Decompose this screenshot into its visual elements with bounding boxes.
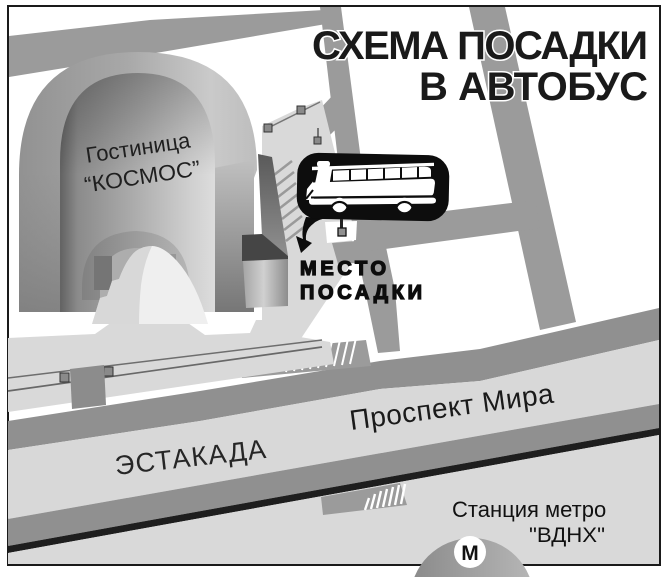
svg-text:СХЕМА ПОСАДКИ: СХЕМА ПОСАДКИ [312,24,648,68]
svg-text:МЕСТО: МЕСТО [300,258,386,280]
svg-text:М: М [461,542,479,565]
svg-text:"ВДНХ": "ВДНХ" [529,524,605,547]
svg-text:В АВТОБУС: В АВТОБУС [419,65,648,109]
svg-text:ПОСАДКИ: ПОСАДКИ [300,282,422,304]
svg-text:Станция метро: Станция метро [452,497,606,522]
